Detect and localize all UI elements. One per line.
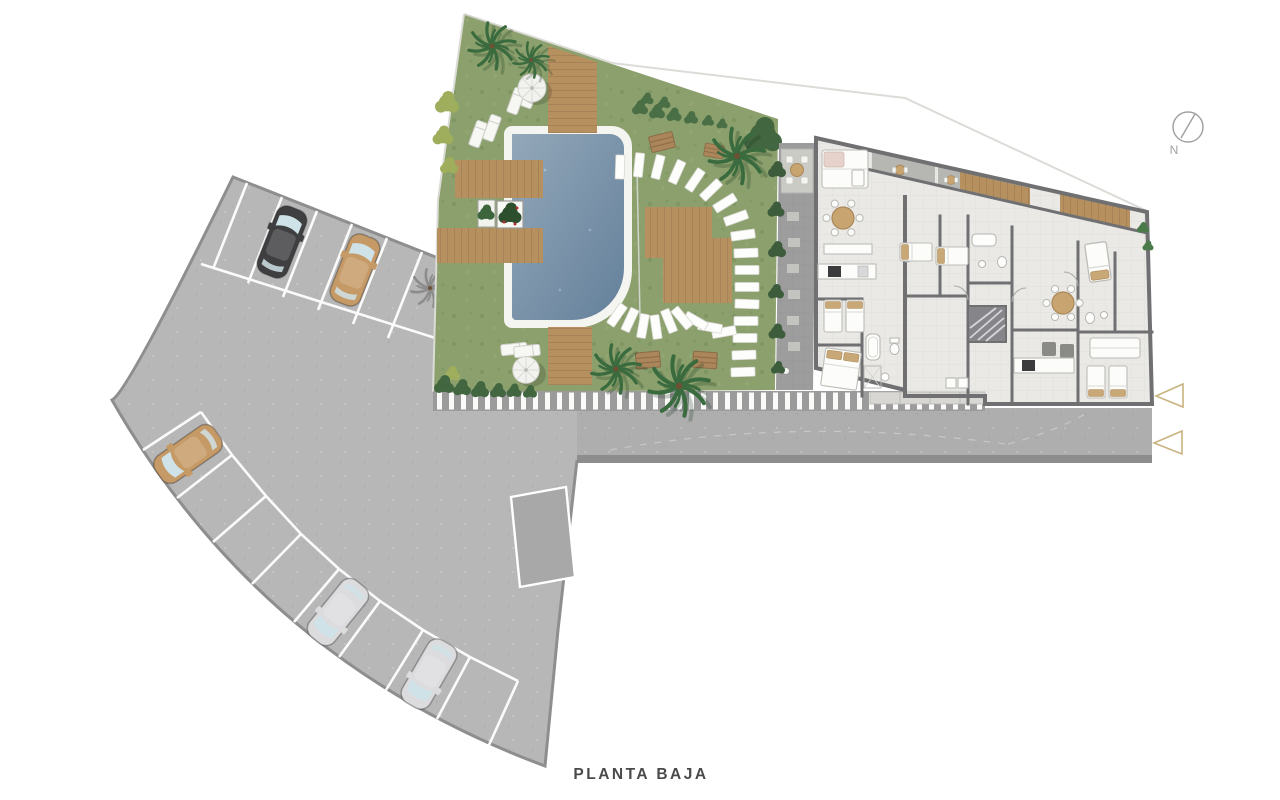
stairwell xyxy=(968,306,1006,342)
sink xyxy=(858,266,868,277)
toilet xyxy=(1086,313,1095,324)
armchair xyxy=(1060,344,1074,358)
sink xyxy=(881,373,889,381)
kitchen-counter xyxy=(1014,358,1074,373)
plan-title: PLANTA BAJA xyxy=(573,766,708,783)
sink xyxy=(1101,312,1108,319)
bathtub xyxy=(972,234,996,246)
bed-double xyxy=(1085,241,1112,282)
site-plan: N PLANTA BAJA xyxy=(0,0,1280,800)
bed-single xyxy=(1087,366,1105,398)
compass-needle xyxy=(1181,114,1195,138)
sink xyxy=(979,261,986,268)
curb xyxy=(577,455,1152,463)
toilet xyxy=(890,344,899,355)
bed-single xyxy=(936,247,968,265)
bed-single xyxy=(1109,366,1127,398)
patio-table xyxy=(791,164,804,177)
wood-deck-pool-left-lower xyxy=(437,228,543,263)
armchair xyxy=(1042,342,1056,356)
bed-double xyxy=(821,348,862,391)
planter-small xyxy=(478,200,496,227)
bed-single xyxy=(824,300,842,332)
courtyard-patio xyxy=(781,149,813,193)
bed-single xyxy=(846,300,864,332)
ramp-zone xyxy=(511,487,575,587)
washer xyxy=(958,378,968,388)
wood-deck-pool-left-upper xyxy=(455,160,543,198)
planter xyxy=(497,201,523,228)
bed-single xyxy=(900,243,932,261)
sofa xyxy=(1090,338,1140,358)
direction-marker-icon xyxy=(1156,384,1183,407)
north-label: N xyxy=(1170,143,1179,157)
wood-deck-pool-bottom xyxy=(548,327,592,385)
site-plan-page: N PLANTA BAJA xyxy=(0,0,1280,800)
direction-markers xyxy=(1154,384,1183,454)
toilet xyxy=(998,257,1007,268)
washer xyxy=(946,378,956,388)
stove xyxy=(1022,360,1035,371)
sofa xyxy=(822,150,868,188)
apartment-building xyxy=(816,138,1154,404)
north-indicator xyxy=(1173,112,1203,142)
stove xyxy=(828,266,841,277)
coffee-table xyxy=(852,170,864,186)
direction-marker-icon xyxy=(1154,431,1182,454)
wood-deck-central-b xyxy=(663,238,732,303)
